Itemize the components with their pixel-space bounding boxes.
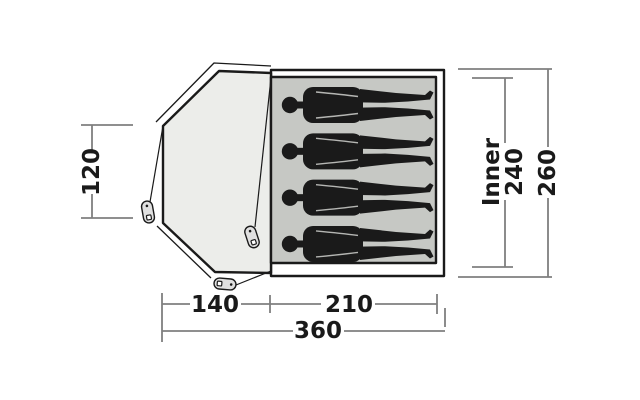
floorplan-canvas: 120 140 210 360 Inner 240 260: [0, 0, 640, 400]
inner-width-label: 240: [502, 148, 528, 196]
inner-depth-label: 210: [325, 292, 373, 318]
dimension-porch-height: 120: [79, 125, 133, 218]
total-depth-label: 360: [294, 318, 342, 344]
guy-line: [150, 126, 163, 202]
porch-depth-label: 140: [191, 292, 239, 318]
porch-height-label: 120: [79, 148, 105, 196]
tent-peg-icon: [141, 200, 156, 224]
dimension-bottom: 140 210 360: [162, 292, 445, 344]
tent-peg-icon: [214, 278, 237, 291]
dimension-inner-width: Inner 240: [472, 78, 528, 267]
total-width-label: 260: [535, 149, 561, 197]
tent-floorplan-diagram: 120 140 210 360 Inner 240 260: [0, 0, 640, 400]
